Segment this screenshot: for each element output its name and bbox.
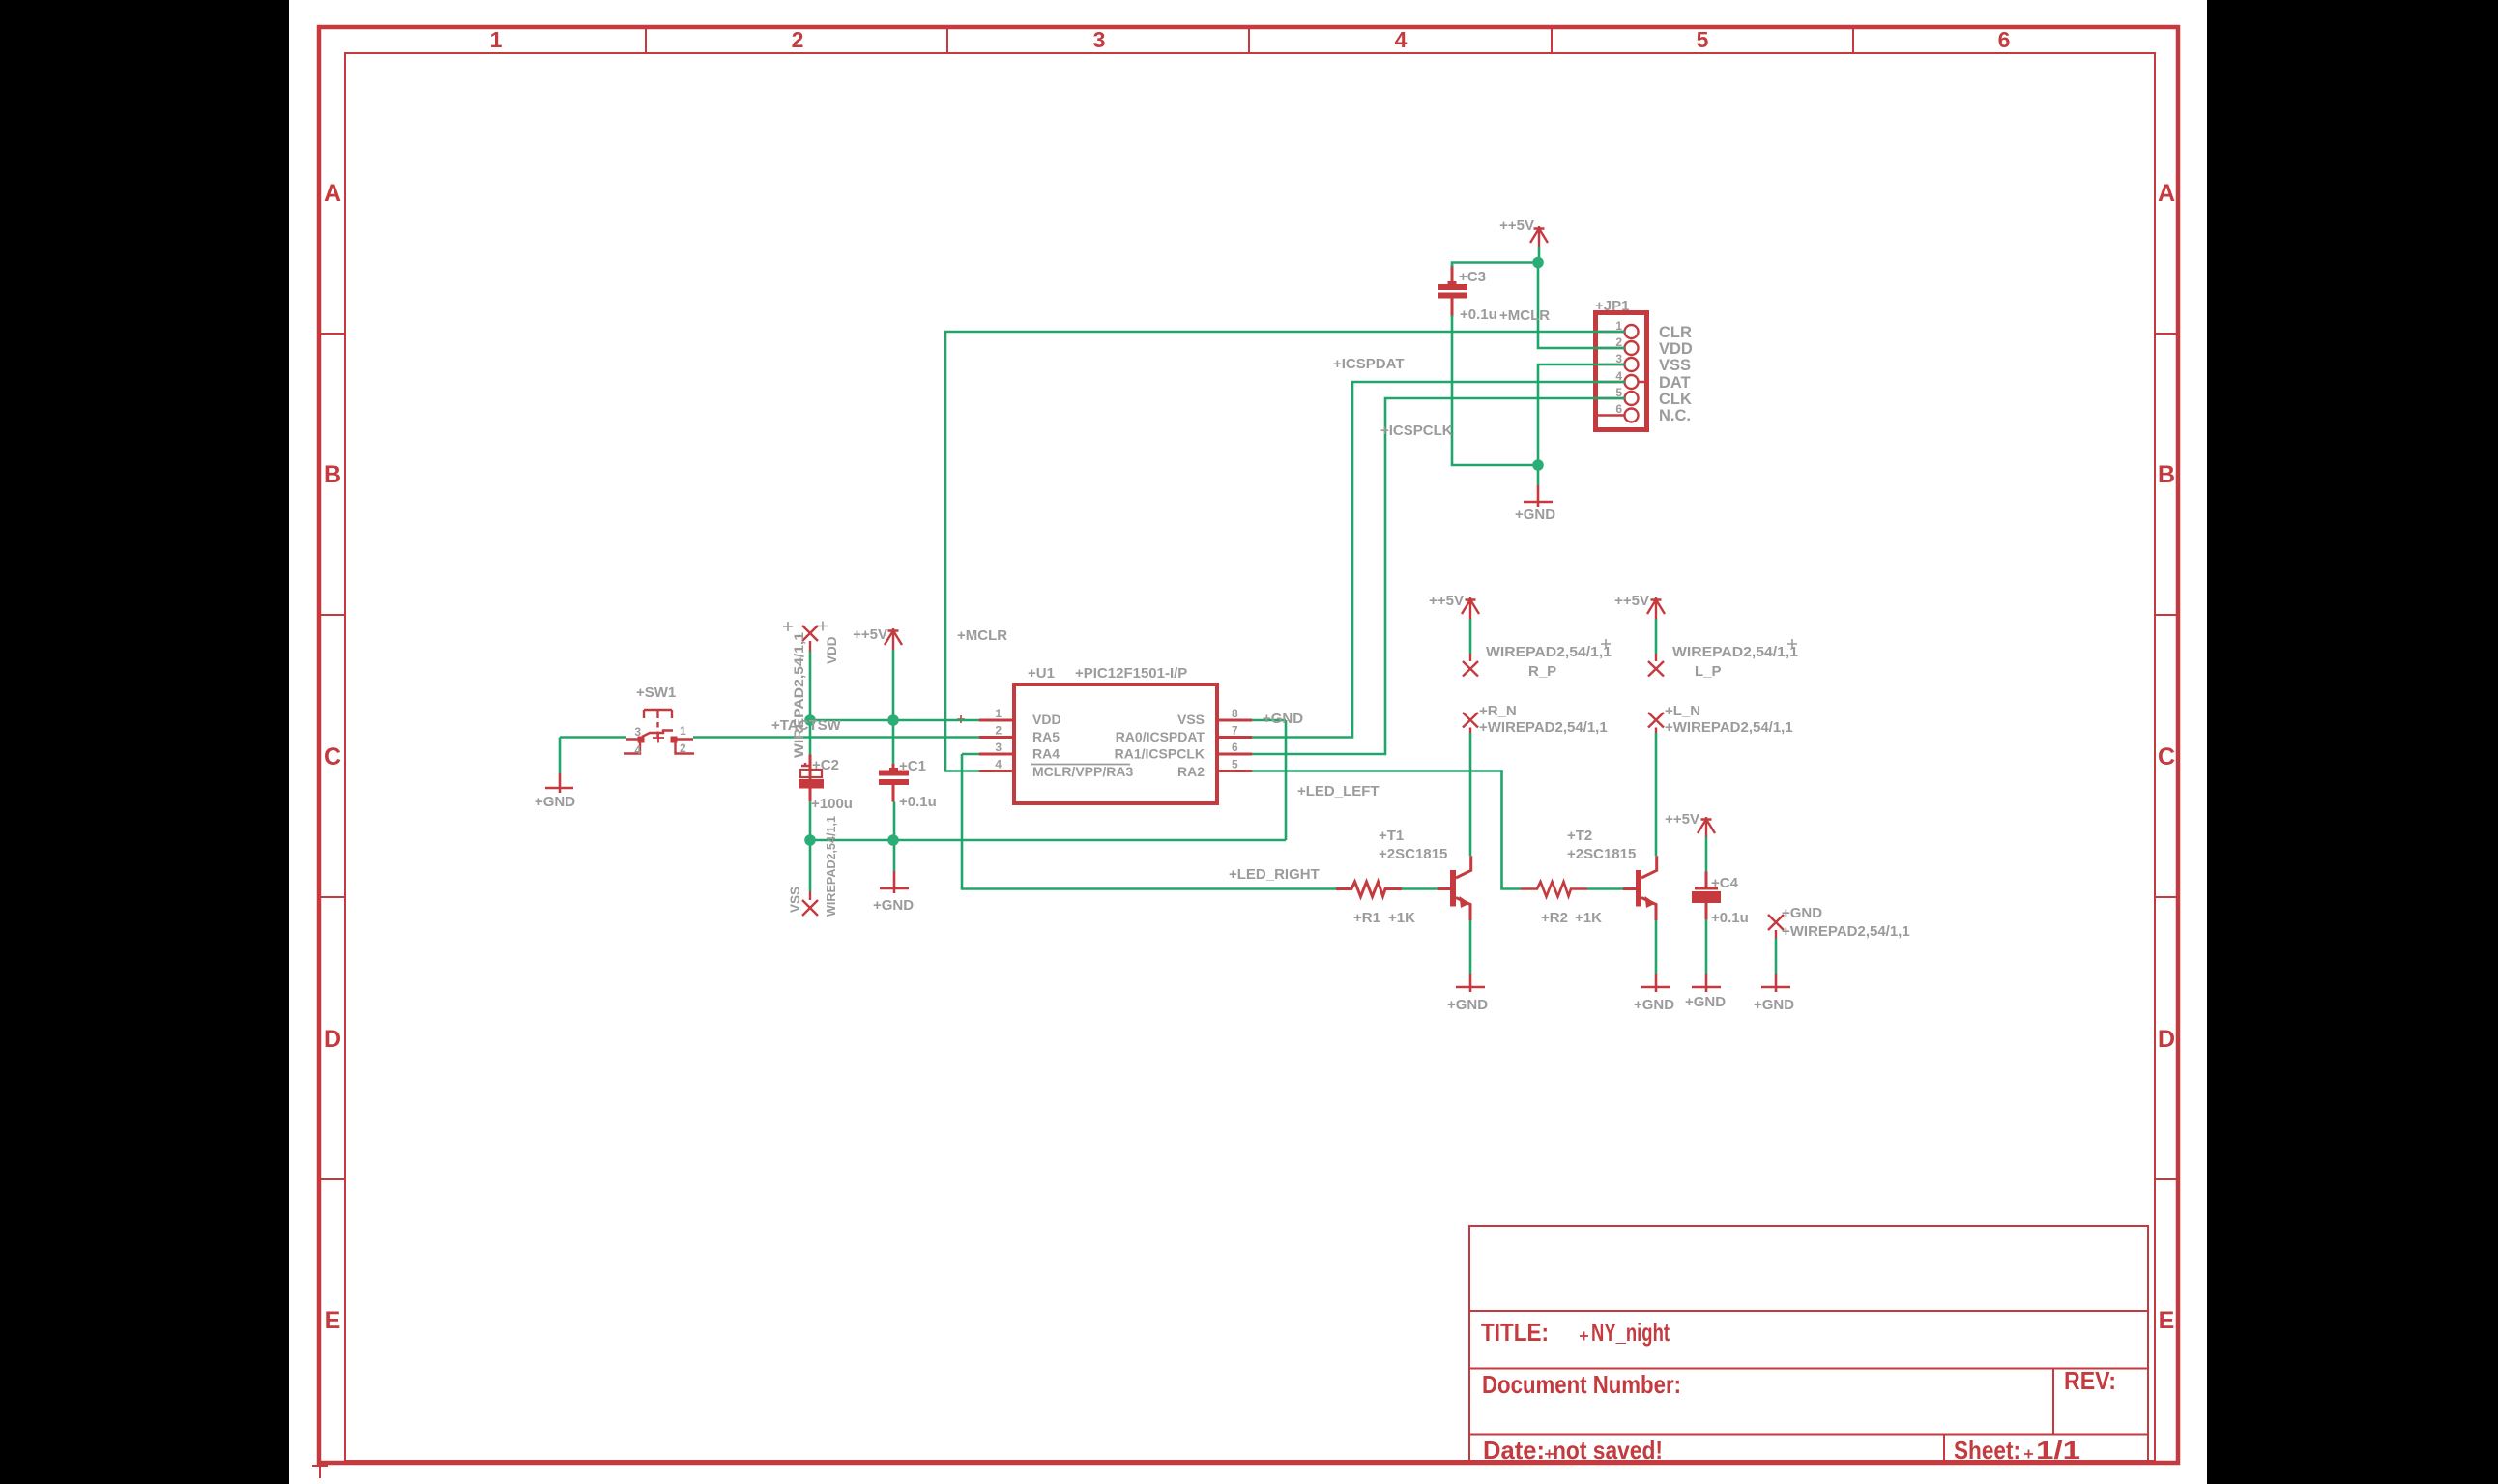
- svg-text:6: 6: [1615, 402, 1622, 416]
- svg-text:VSS: VSS: [1177, 712, 1205, 727]
- svg-text:VDD: VDD: [825, 636, 839, 664]
- svg-text:WIREPAD2,54/1,1: WIREPAD2,54/1,1: [1486, 644, 1612, 660]
- svg-text:+GND: +GND: [1447, 997, 1488, 1013]
- svg-text:not saved!: not saved!: [1553, 1436, 1663, 1465]
- svg-text:RA4: RA4: [1032, 746, 1060, 762]
- svg-text:+C3: +C3: [1459, 269, 1486, 285]
- svg-text:+TACTSW: +TACTSW: [771, 717, 842, 734]
- svg-text:D: D: [324, 1026, 341, 1053]
- svg-text:5: 5: [1232, 758, 1238, 771]
- svg-text:3: 3: [634, 725, 641, 739]
- svg-text:+MCLR: +MCLR: [957, 627, 1007, 644]
- svg-text:A: A: [2158, 180, 2175, 207]
- svg-text:VDD: VDD: [1032, 712, 1061, 727]
- svg-text:6: 6: [1998, 27, 2011, 52]
- svg-text:+GND: +GND: [1515, 507, 1555, 523]
- svg-text:4: 4: [1615, 369, 1622, 383]
- svg-text:5: 5: [1697, 27, 1709, 52]
- svg-text:REV:: REV:: [2064, 1366, 2116, 1395]
- svg-text:1: 1: [490, 27, 503, 52]
- svg-text:DAT: DAT: [1659, 374, 1691, 392]
- svg-text:MCLR/VPP/RA3: MCLR/VPP/RA3: [1032, 764, 1133, 779]
- svg-text:C: C: [324, 743, 341, 771]
- svg-text:+T1: +T1: [1379, 828, 1404, 844]
- svg-text:+PIC12F1501-I/P: +PIC12F1501-I/P: [1075, 665, 1187, 682]
- svg-text:VSS: VSS: [1659, 357, 1691, 374]
- svg-text:+R2: +R2: [1541, 910, 1568, 926]
- svg-text:+2SC1815: +2SC1815: [1567, 846, 1636, 862]
- svg-text:1/1: 1/1: [2036, 1436, 2080, 1465]
- svg-text:7: 7: [1232, 724, 1238, 738]
- svg-text:++5V: ++5V: [1499, 218, 1534, 234]
- svg-text:+R_N: +R_N: [1479, 703, 1517, 719]
- svg-text:3: 3: [995, 741, 1002, 754]
- svg-text:B: B: [2158, 461, 2175, 488]
- svg-text:++5V: ++5V: [1614, 593, 1649, 609]
- svg-text:+C1: +C1: [899, 758, 926, 774]
- svg-text:C: C: [2158, 743, 2175, 771]
- svg-text:+GND: +GND: [873, 897, 914, 914]
- svg-text:L_P: L_P: [1695, 663, 1722, 680]
- svg-text:8: 8: [1232, 707, 1238, 720]
- svg-text:+MCLR: +MCLR: [1499, 307, 1550, 324]
- svg-text:+100u: +100u: [811, 796, 853, 812]
- svg-text:+C4: +C4: [1711, 875, 1739, 891]
- svg-text:4: 4: [1395, 27, 1408, 52]
- svg-text:CLR: CLR: [1659, 324, 1692, 341]
- svg-text:+WIREPAD2,54/1,1: +WIREPAD2,54/1,1: [1479, 719, 1608, 736]
- svg-text:4: 4: [634, 743, 641, 757]
- svg-text:+2SC1815: +2SC1815: [1379, 846, 1447, 862]
- svg-text:+1K: +1K: [1388, 910, 1415, 926]
- svg-text:CLK: CLK: [1659, 391, 1692, 408]
- svg-text:+U1: +U1: [1028, 665, 1055, 682]
- svg-text:++5V: ++5V: [853, 626, 887, 643]
- svg-text:RA1/ICSPCLK: RA1/ICSPCLK: [1115, 746, 1205, 762]
- svg-text:+R1: +R1: [1353, 910, 1380, 926]
- svg-text:+T2: +T2: [1567, 828, 1592, 844]
- svg-text:2: 2: [1615, 335, 1622, 349]
- svg-text:VDD: VDD: [1659, 340, 1693, 358]
- svg-text:+JP1: +JP1: [1595, 298, 1629, 314]
- svg-text:2: 2: [995, 724, 1002, 738]
- svg-text:RA2: RA2: [1177, 764, 1205, 779]
- svg-text:+GND: +GND: [1782, 905, 1822, 921]
- svg-text:+GND: +GND: [535, 794, 575, 810]
- svg-text:N.C.: N.C.: [1659, 407, 1691, 424]
- svg-text:2: 2: [792, 27, 804, 52]
- svg-text:+0.1u: +0.1u: [1460, 306, 1497, 323]
- svg-text:+L_N: +L_N: [1665, 703, 1700, 719]
- svg-text:E: E: [325, 1307, 341, 1334]
- svg-text:+ICSPDAT: +ICSPDAT: [1333, 356, 1404, 372]
- svg-text:B: B: [324, 461, 341, 488]
- svg-text:++5V: ++5V: [1429, 593, 1464, 609]
- svg-text:E: E: [2159, 1307, 2175, 1334]
- svg-text:+WIREPAD2,54/1,1: +WIREPAD2,54/1,1: [1665, 719, 1793, 736]
- svg-text:A: A: [324, 180, 341, 207]
- svg-text:RA0/ICSPDAT: RA0/ICSPDAT: [1116, 729, 1205, 744]
- svg-text:+LED_LEFT: +LED_LEFT: [1297, 783, 1380, 800]
- svg-text:+GND: +GND: [1263, 711, 1303, 727]
- svg-text:+0.1u: +0.1u: [899, 794, 937, 810]
- svg-text:TITLE:: TITLE:: [1481, 1318, 1549, 1347]
- svg-text:RA5: RA5: [1032, 729, 1060, 744]
- svg-text:1: 1: [1615, 319, 1622, 333]
- svg-text:+WIREPAD2,54/1,1: +WIREPAD2,54/1,1: [1782, 923, 1910, 940]
- svg-text:+GND: +GND: [1754, 997, 1794, 1013]
- svg-text:+0.1u: +0.1u: [1711, 910, 1749, 926]
- svg-text:++5V: ++5V: [1665, 811, 1699, 828]
- svg-text:Sheet:: Sheet:: [1954, 1436, 2020, 1465]
- svg-text:+ICSPCLK: +ICSPCLK: [1380, 422, 1453, 439]
- svg-text:+GND: +GND: [1634, 997, 1674, 1013]
- svg-text:+GND: +GND: [1685, 994, 1726, 1010]
- svg-text:Date:: Date:: [1483, 1436, 1545, 1465]
- svg-text:VSS: VSS: [788, 887, 802, 913]
- svg-text:5: 5: [1615, 386, 1622, 399]
- svg-text:R_P: R_P: [1528, 663, 1556, 680]
- svg-text:D: D: [2158, 1026, 2175, 1053]
- svg-text:6: 6: [1232, 741, 1238, 754]
- svg-text:WIREPAD2,54/1,1: WIREPAD2,54/1,1: [792, 631, 806, 758]
- svg-text:+C2: +C2: [812, 757, 839, 773]
- svg-text:WIREPAD2,54/1,1: WIREPAD2,54/1,1: [824, 816, 838, 917]
- svg-text:+1K: +1K: [1575, 910, 1602, 926]
- svg-text:3: 3: [1615, 352, 1622, 365]
- svg-text:1: 1: [995, 707, 1002, 720]
- svg-text:Document Number:: Document Number:: [1482, 1370, 1681, 1399]
- svg-text:WIREPAD2,54/1,1: WIREPAD2,54/1,1: [1672, 644, 1798, 660]
- svg-text:4: 4: [995, 758, 1002, 771]
- svg-text:3: 3: [1093, 27, 1106, 52]
- svg-text:+LED_RIGHT: +LED_RIGHT: [1229, 866, 1320, 883]
- svg-text:1: 1: [680, 724, 686, 738]
- svg-text:+SW1: +SW1: [636, 684, 676, 701]
- svg-text:NY_night: NY_night: [1591, 1318, 1670, 1347]
- svg-text:2: 2: [680, 742, 686, 755]
